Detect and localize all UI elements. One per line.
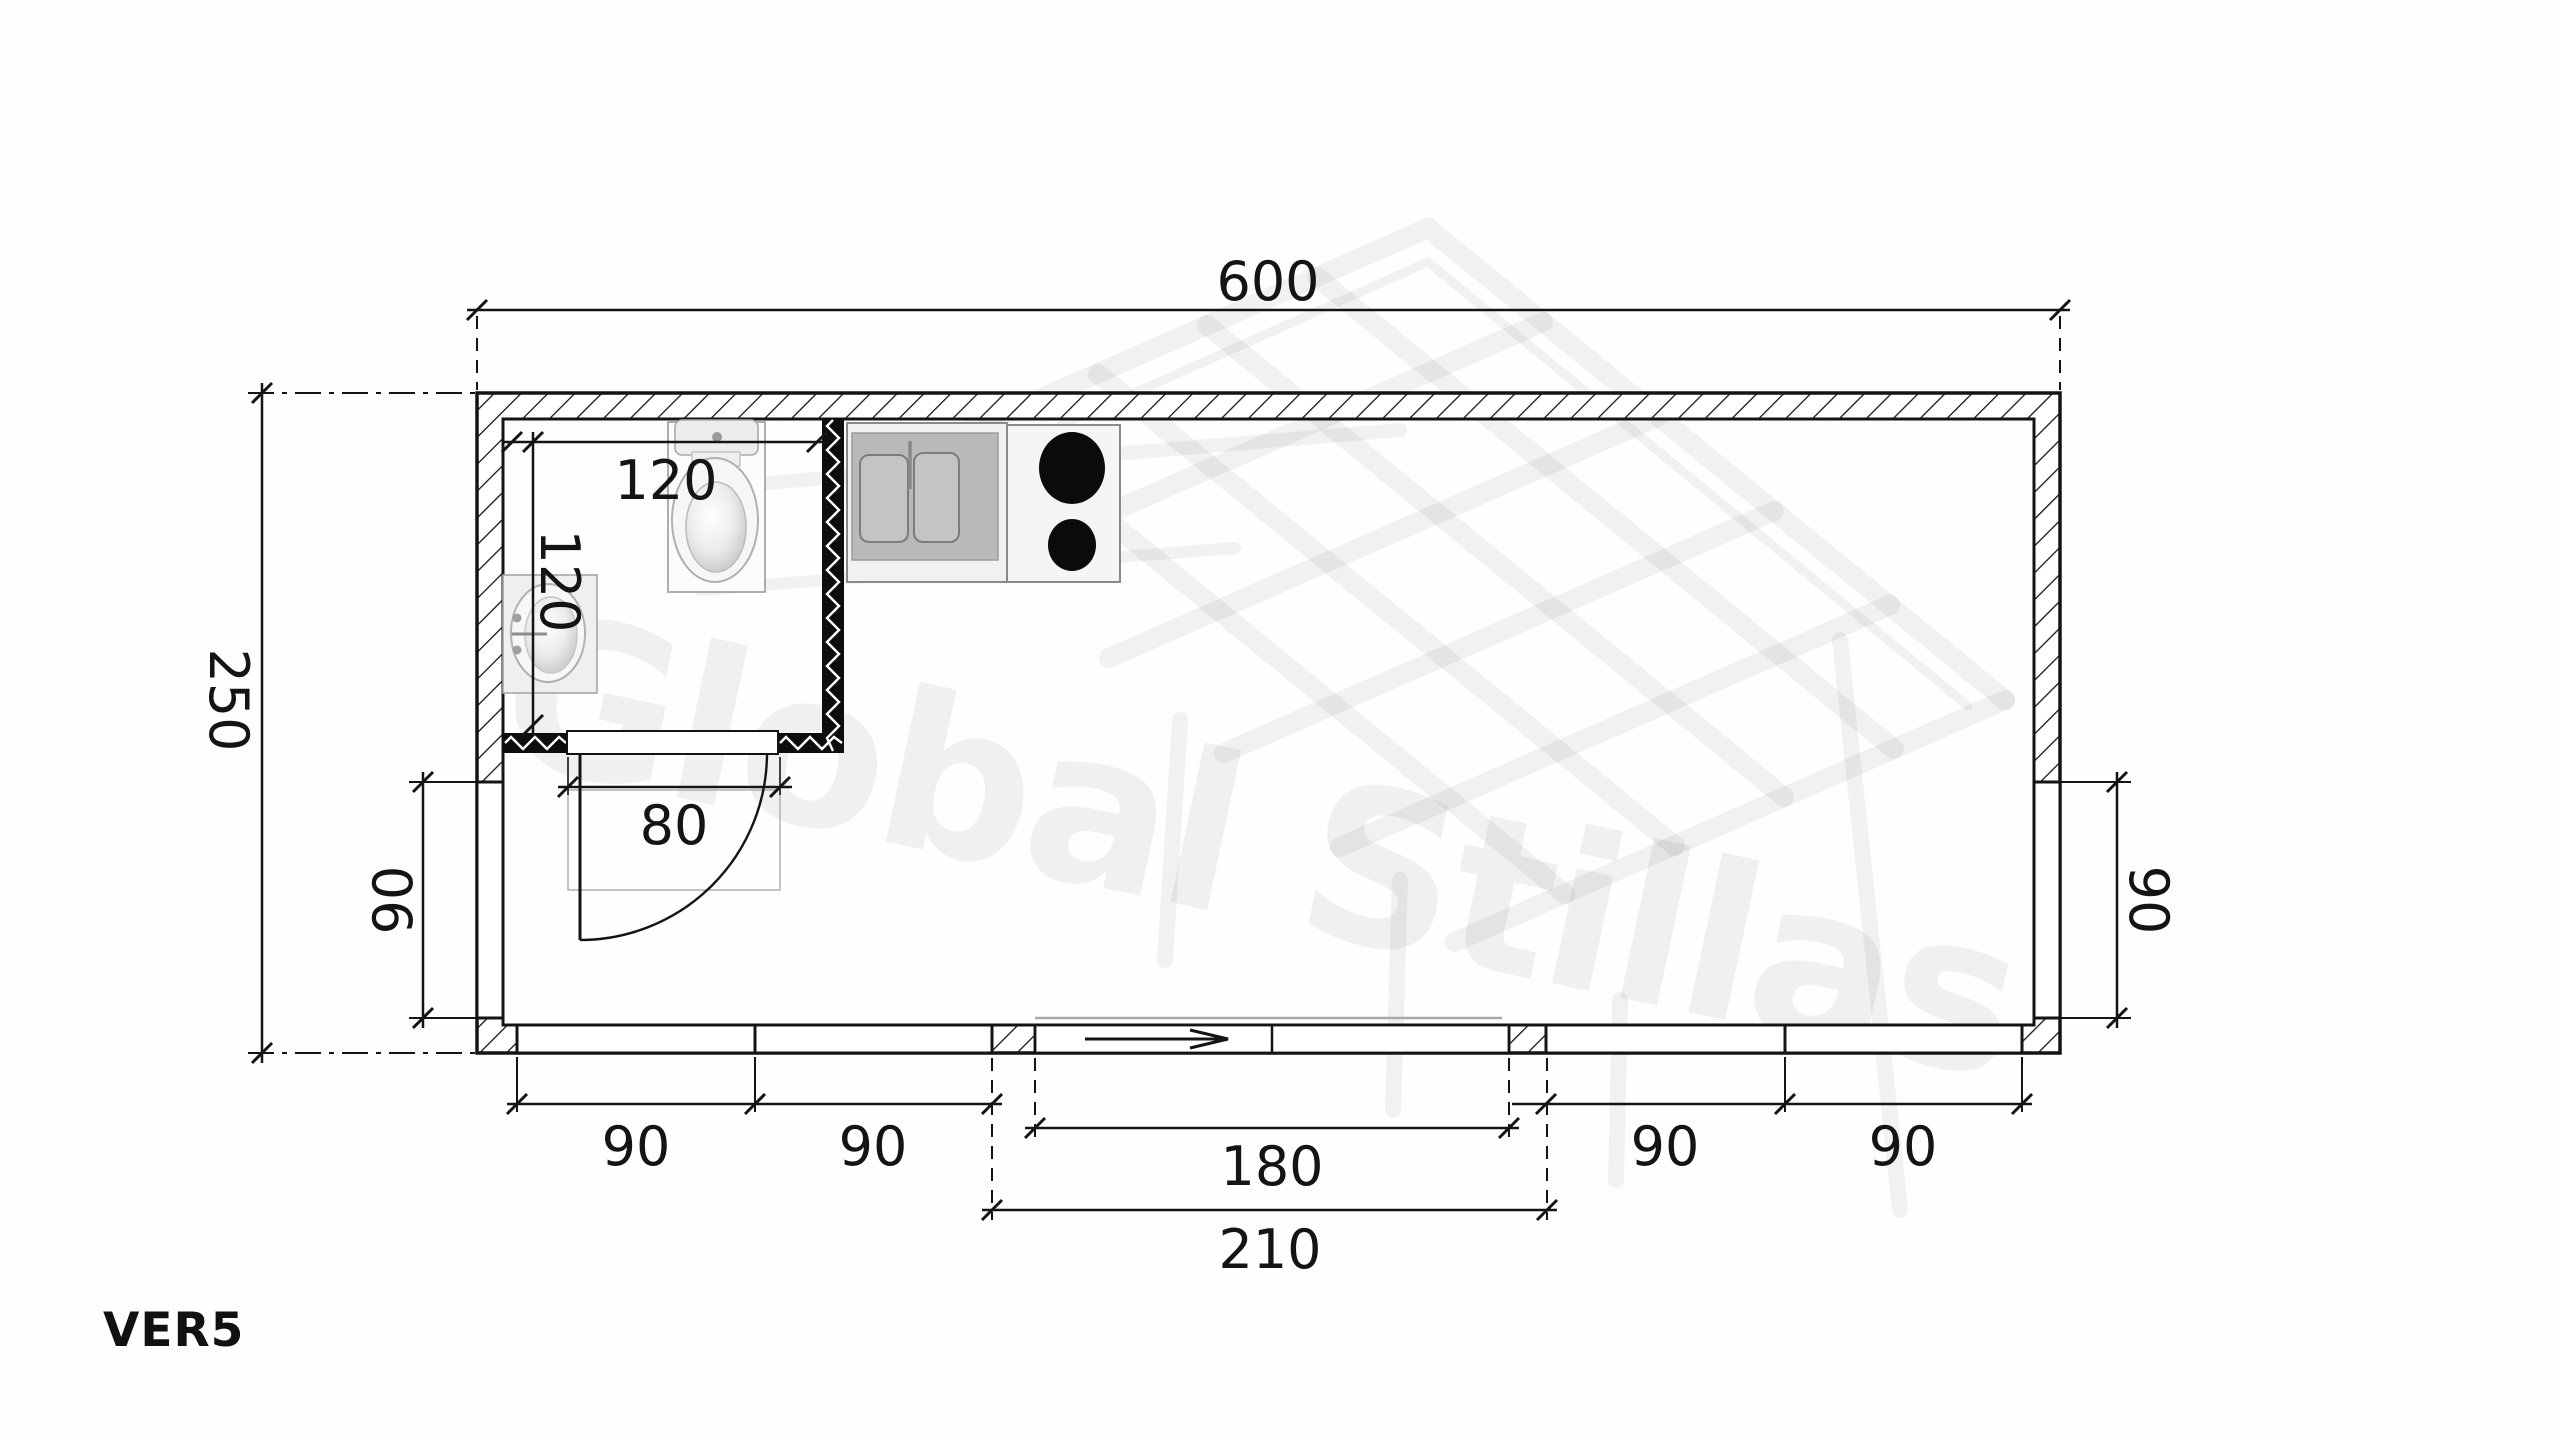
dim-label-bathroom-door: 80 bbox=[640, 799, 709, 853]
dimension-lines bbox=[248, 300, 2131, 1220]
dim-label-bottom-right-window-b: 90 bbox=[1869, 1120, 1938, 1174]
dim-label-bottom-left-window-a: 90 bbox=[602, 1120, 671, 1174]
dim-label-bathroom-depth: 120 bbox=[532, 529, 586, 632]
window-right bbox=[2034, 782, 2060, 1018]
drawing-version-label: VER5 bbox=[103, 1303, 244, 1358]
kitchen-sink bbox=[847, 423, 1007, 582]
floor-plan-canvas: Global Stillas bbox=[0, 0, 2560, 1440]
dim-label-entry-with-frame: 210 bbox=[1218, 1223, 1321, 1277]
bathroom-door-opening bbox=[567, 731, 778, 754]
dashdot-extensions bbox=[248, 393, 514, 1053]
dim-label-bottom-right-window-a: 90 bbox=[1631, 1120, 1700, 1174]
window-bottom-left-b bbox=[755, 1025, 992, 1053]
dim-label-overall-width: 600 bbox=[1216, 255, 1319, 309]
dim-label-entry-opening: 180 bbox=[1220, 1140, 1323, 1194]
dim-label-right-window: 90 bbox=[2121, 866, 2175, 935]
dim-label-bottom-left-window-b: 90 bbox=[839, 1120, 908, 1174]
dim-label-bathroom-width: 120 bbox=[614, 454, 717, 508]
window-bottom-left-a bbox=[517, 1025, 755, 1053]
dim-label-left-window: 90 bbox=[367, 866, 421, 935]
window-openings bbox=[477, 782, 2060, 1053]
window-bottom-right-a bbox=[1546, 1025, 1785, 1053]
dim-label-overall-depth: 250 bbox=[201, 648, 255, 751]
window-bottom-right-b bbox=[1785, 1025, 2022, 1053]
stove bbox=[1007, 425, 1120, 582]
window-left bbox=[477, 782, 503, 1018]
entry-door bbox=[1035, 1018, 1509, 1053]
